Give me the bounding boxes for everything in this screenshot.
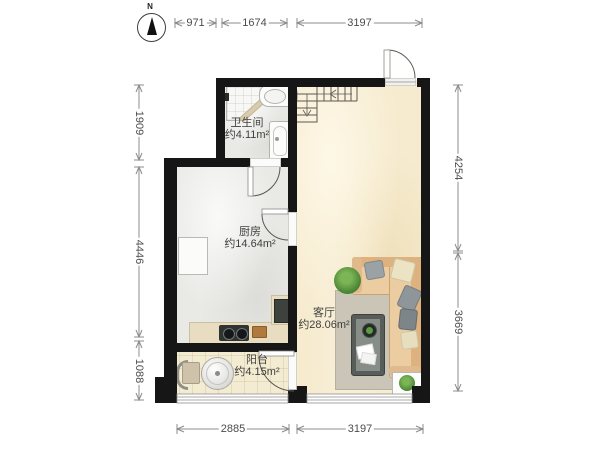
wall	[164, 158, 177, 403]
wall	[288, 87, 297, 212]
room-label-living: 客厅 约28.06m²	[279, 307, 369, 331]
room-area: 约14.64m²	[224, 238, 275, 250]
wall-corner	[412, 386, 430, 403]
room-label-kitchen: 厨房 约14.64m²	[205, 226, 295, 250]
potted-plant	[334, 267, 361, 294]
dimension-label: 1909	[133, 108, 145, 136]
wall	[421, 78, 430, 403]
entry-door-leaf	[384, 50, 390, 78]
dimension-label: 3669	[452, 308, 464, 336]
room-area: 约28.06m²	[298, 319, 349, 331]
pillow	[400, 330, 419, 350]
room-name: 卫生间	[231, 117, 264, 129]
pillow	[398, 308, 418, 331]
dimension-label: 971	[184, 17, 206, 29]
burner-icon	[236, 328, 248, 340]
room-area: 约4.15m²	[234, 366, 279, 378]
room-name: 厨房	[239, 226, 261, 238]
dimension-label: 4446	[133, 238, 145, 266]
room-label-balcony: 阳台 约4.15m²	[212, 354, 302, 378]
burner-icon	[223, 328, 235, 340]
dimension-label: 1088	[133, 356, 145, 384]
balcony-chair	[176, 358, 200, 386]
wall-mullion	[288, 386, 307, 403]
dimension-label: 3197	[345, 17, 373, 29]
dimension-label: 1674	[240, 17, 268, 29]
stove	[219, 325, 249, 341]
wall	[164, 343, 297, 352]
window-living	[307, 394, 412, 403]
compass-needle-icon	[147, 17, 157, 35]
dimension-label: 3197	[346, 423, 374, 435]
kitchen-cabinet	[178, 237, 208, 275]
dimension-label: 4254	[452, 154, 464, 182]
room-name: 阳台	[246, 354, 268, 366]
room-area: 约4.11m²	[225, 129, 269, 141]
wall-corner	[155, 377, 177, 403]
dimension-label: 2885	[219, 423, 247, 435]
window-balcony	[177, 394, 288, 403]
room-label-bathroom: 卫生间 约4.11m²	[202, 117, 292, 141]
wall	[216, 78, 297, 87]
wall	[288, 78, 385, 87]
room-name: 客厅	[313, 307, 335, 319]
papers	[360, 352, 377, 365]
wall	[288, 246, 297, 352]
floor-plan: N	[0, 0, 600, 450]
compass-icon	[137, 13, 166, 42]
compass-north-label: N	[132, 2, 168, 11]
shower-head-icon	[225, 93, 229, 101]
entry-door-arc	[387, 50, 415, 78]
cutting-board	[252, 326, 267, 338]
pillow	[364, 259, 386, 280]
